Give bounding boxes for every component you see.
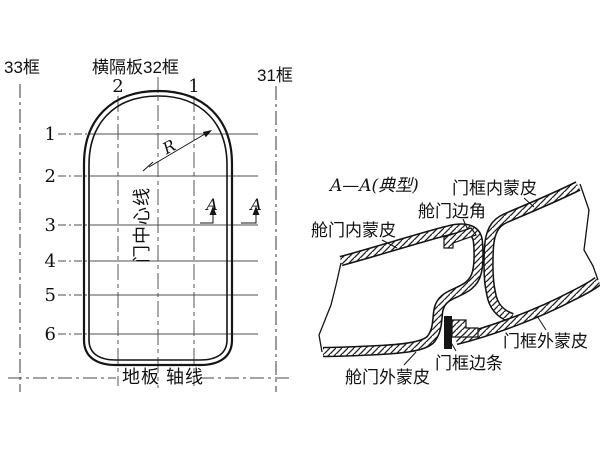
frame-edge-strip-web [444,316,452,349]
frame-outer-skin-leader [537,316,546,330]
frame-33-label: 33框 [4,58,40,77]
row-label-4: 4 [45,251,56,272]
door-outer-skin-label: 舱门外蒙皮 [345,368,430,387]
bulkhead-32-label: 横隔板32框 [92,58,179,77]
drawing-canvas: 33框 横隔板32框 31框 2 1 1 2 3 4 5 6 [0,0,600,450]
row-label-5: 5 [45,285,56,306]
frame-outer-skin-label: 门框外蒙皮 [503,332,588,351]
door-outer-skin-leader [404,352,416,365]
section-a-a-view: A—A(典型) 门框内蒙皮 舱门边角 舱门内蒙皮 门框外蒙皮 门框边条 舱门外蒙… [311,176,598,387]
floor-axis-label: 地板 轴线 [122,367,204,387]
station-label-2: 2 [112,76,123,97]
frame-edge-strip-flange [452,320,478,337]
section-title: A—A(典型) [328,176,419,196]
frame-break-edge [580,184,598,280]
radius-callout: R [143,130,212,171]
section-cut-marks: A A [200,195,262,223]
station-label-1: 1 [188,76,199,97]
door-inner-skin-label: 舱门内蒙皮 [311,221,396,240]
row-label-3: 3 [45,215,56,236]
cabin-door-break-edge [319,263,341,352]
door-front-view: 33框 横隔板32框 31框 2 1 1 2 3 4 5 6 [4,58,293,392]
engineering-drawing: 33框 横隔板32框 31框 2 1 1 2 3 4 5 6 [0,0,600,450]
door-centerline-label: 门中心线 [132,187,152,263]
frame-edge-strip-label: 门框边条 [435,354,503,373]
door-edge-angle-label: 舱门边角 [418,202,486,221]
radius-label: R [158,136,178,159]
frame-inner-skin-label: 门框内蒙皮 [452,179,537,198]
row-label-1: 1 [45,124,56,145]
frame-31-label: 31框 [257,66,293,85]
row-label-6: 6 [45,324,56,345]
row-label-2: 2 [45,166,56,187]
